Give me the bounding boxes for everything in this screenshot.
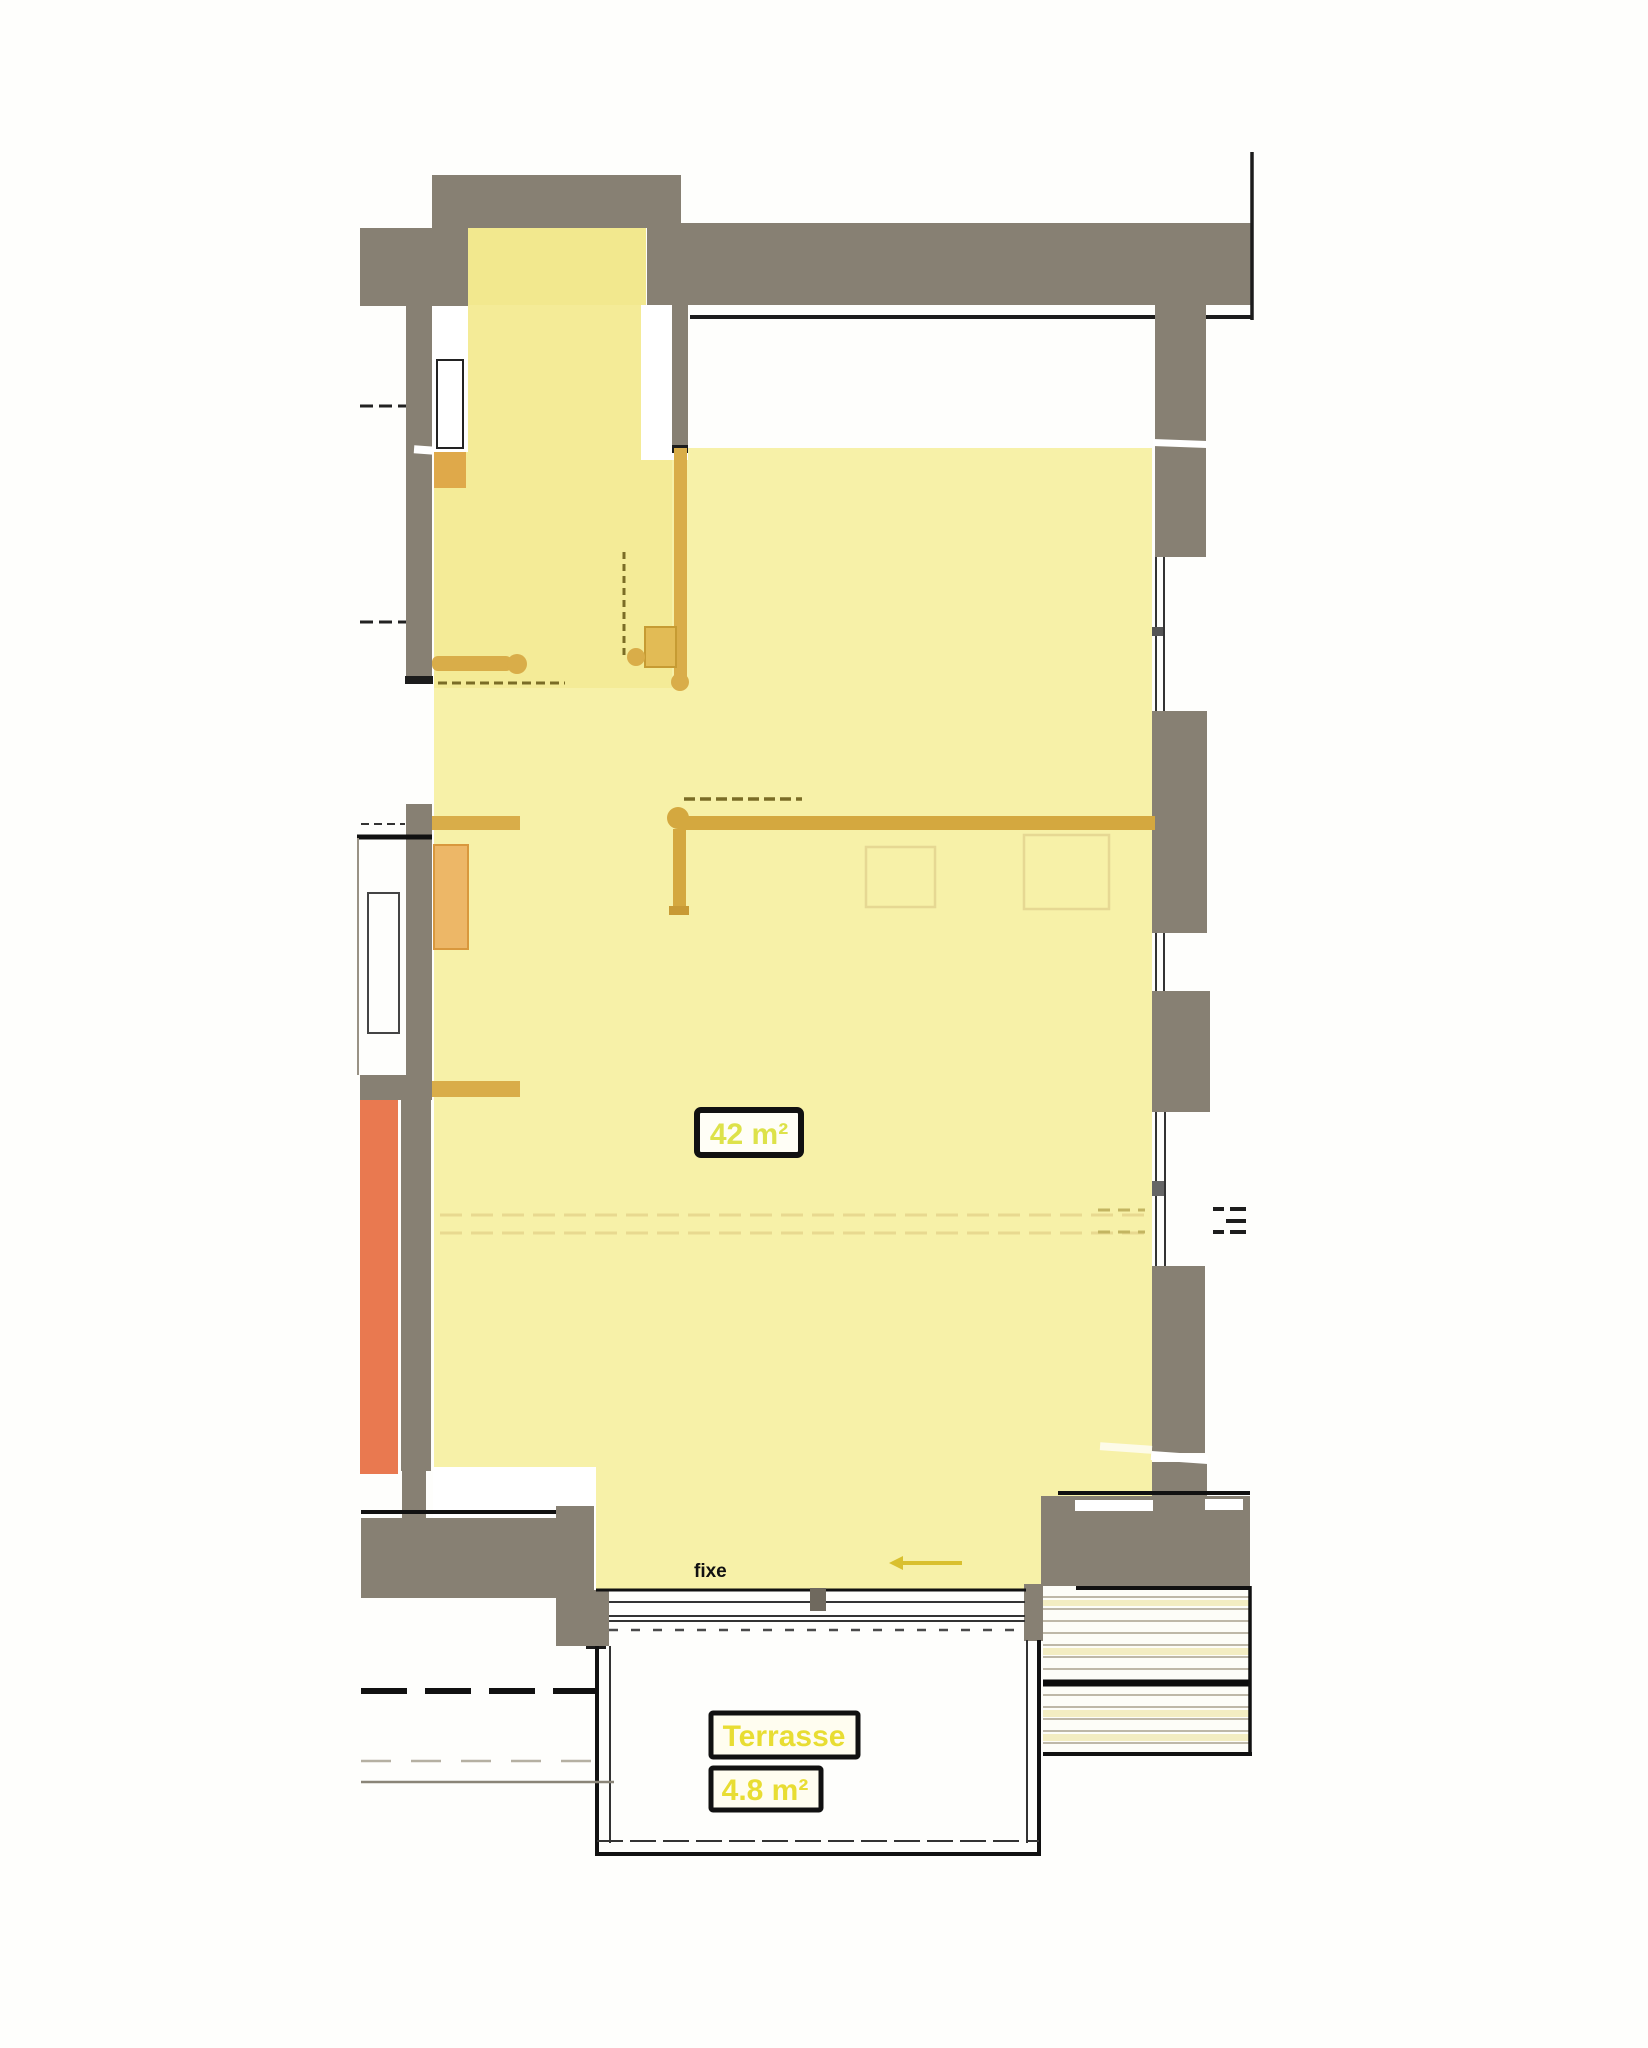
svg-text:fixe: fixe bbox=[694, 1561, 727, 1582]
svg-text:Terrasse: Terrasse bbox=[723, 1720, 846, 1753]
svg-text:42 m²: 42 m² bbox=[710, 1118, 788, 1151]
svg-text:4.8 m²: 4.8 m² bbox=[722, 1774, 809, 1807]
